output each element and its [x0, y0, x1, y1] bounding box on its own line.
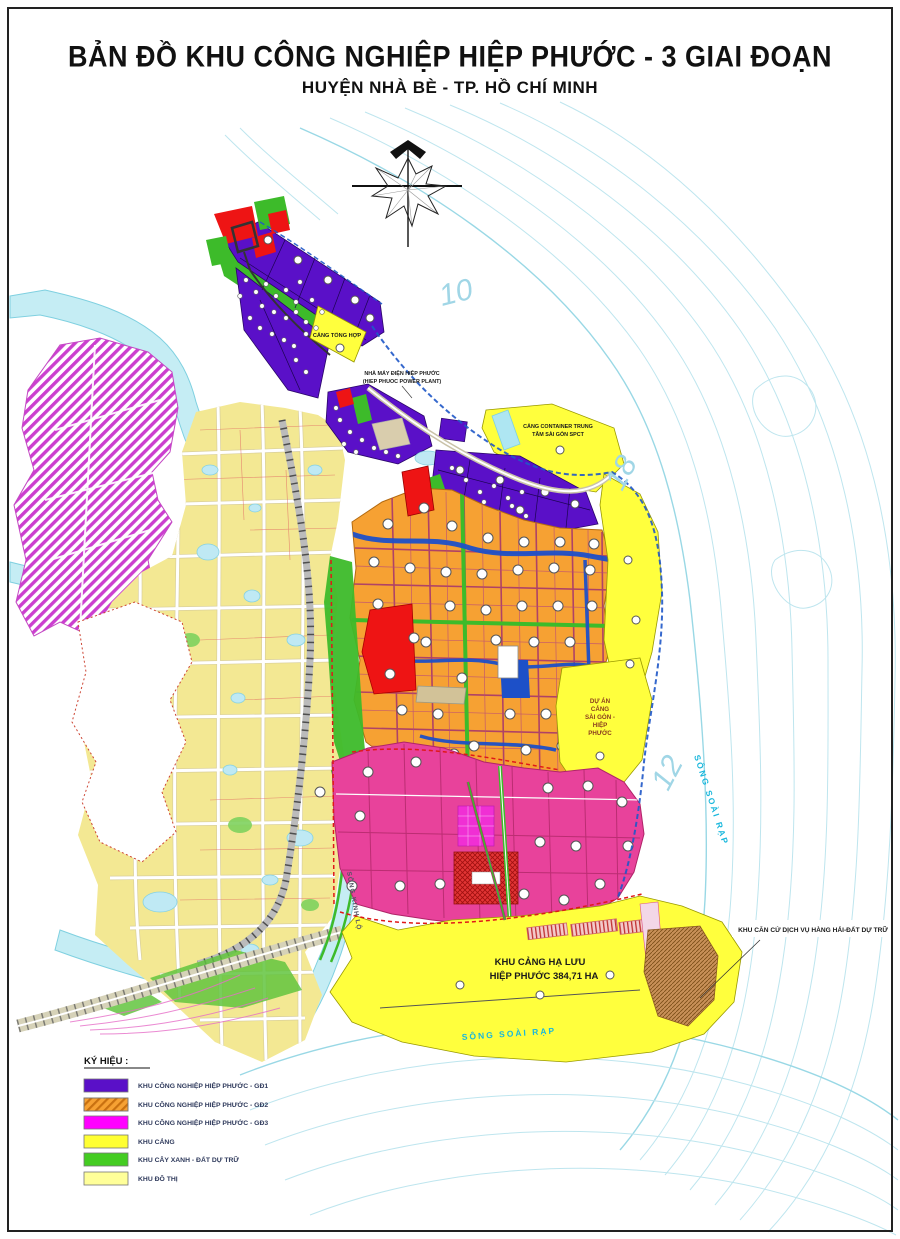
depth-marker-12: 12: [645, 750, 690, 795]
legend-label-cay-xanh: KHU CÂY XANH - ĐẤT DỰ TRỮ: [138, 1154, 239, 1164]
legend-item-gd3: KHU CÔNG NGHIỆP HIỆP PHƯỚC - GĐ3: [84, 1116, 268, 1129]
label-power-plant-2: (HIEP PHUOC POWER PLANT): [363, 379, 442, 385]
label-khu-cang-1: KHU CẢNG HẠ LƯU: [495, 956, 586, 968]
title-block: BẢN ĐỒ KHU CÔNG NGHIỆP HIỆP PHƯỚC - 3 GI…: [0, 42, 900, 98]
label-power-plant-1: NHÀ MÁY ĐIỆN HIỆP PHƯỚC: [364, 369, 439, 377]
legend-label-do-thi: KHU ĐÔ THỊ: [138, 1174, 178, 1183]
legend-title: KÝ HIỆU :: [84, 1055, 128, 1067]
label-du-an-3: SÀI GÒN -: [585, 713, 615, 721]
legend-item-khu-cang: KHU CẢNG: [84, 1135, 175, 1148]
label-spct-1: CẢNG CONTAINER TRUNG: [523, 423, 593, 430]
label-du-an-4: HIỆP: [593, 721, 607, 729]
legend-label-gd3: KHU CÔNG NGHIỆP HIỆP PHƯỚC - GĐ3: [138, 1118, 268, 1127]
label-du-an-2: CẢNG: [591, 706, 609, 713]
legend-item-do-thi: KHU ĐÔ THỊ: [84, 1172, 178, 1185]
legend-item-cay-xanh: KHU CÂY XANH - ĐẤT DỰ TRỮ: [84, 1153, 239, 1166]
label-cang-tong-hop: CẢNG TỔNG HỢP: [313, 332, 362, 339]
zone-gd3-pink: [315, 742, 644, 926]
legend-item-gd2: KHU CÔNG NGHIỆP HIỆP PHƯỚC - GĐ2: [84, 1098, 268, 1111]
legend-label-gd1: KHU CÔNG NGHIỆP HIỆP PHƯỚC - GĐ1: [138, 1081, 268, 1090]
legend-label-gd2: KHU CÔNG NGHIỆP HIỆP PHƯỚC - GĐ2: [138, 1100, 268, 1109]
map-page: BẢN ĐỒ KHU CÔNG NGHIỆP HIỆP PHƯỚC - 3 GI…: [0, 0, 900, 1239]
label-song-soai-rap-right: SÔNG SOÀI RẠP: [692, 753, 732, 846]
label-khu-cang-2: HIỆP PHƯỚC 384,71 HA: [490, 970, 599, 982]
legend-item-gd1: KHU CÔNG NGHIỆP HIỆP PHƯỚC - GĐ1: [84, 1079, 268, 1092]
map-subtitle: HUYỆN NHÀ BÈ - TP. HỒ CHÍ MINH: [0, 78, 900, 98]
planning-map: CẢNG TỔNG HỢP NHÀ MÁY ĐIỆN HIỆP PHƯỚC (H…: [0, 0, 900, 1239]
label-du-an-5: PHƯỚC: [588, 729, 612, 737]
compass-rose: [352, 140, 462, 247]
label-spct-2: TÂM SÀI GÒN SPCT: [532, 430, 585, 438]
label-du-an-1: DỰ ÁN: [590, 698, 611, 705]
map-title: BẢN ĐỒ KHU CÔNG NGHIỆP HIỆP PHƯỚC - 3 GI…: [0, 41, 900, 74]
legend-label-khu-cang: KHU CẢNG: [138, 1137, 175, 1146]
zone-gd1-north: [206, 196, 384, 398]
depth-marker-10: 10: [436, 273, 477, 313]
